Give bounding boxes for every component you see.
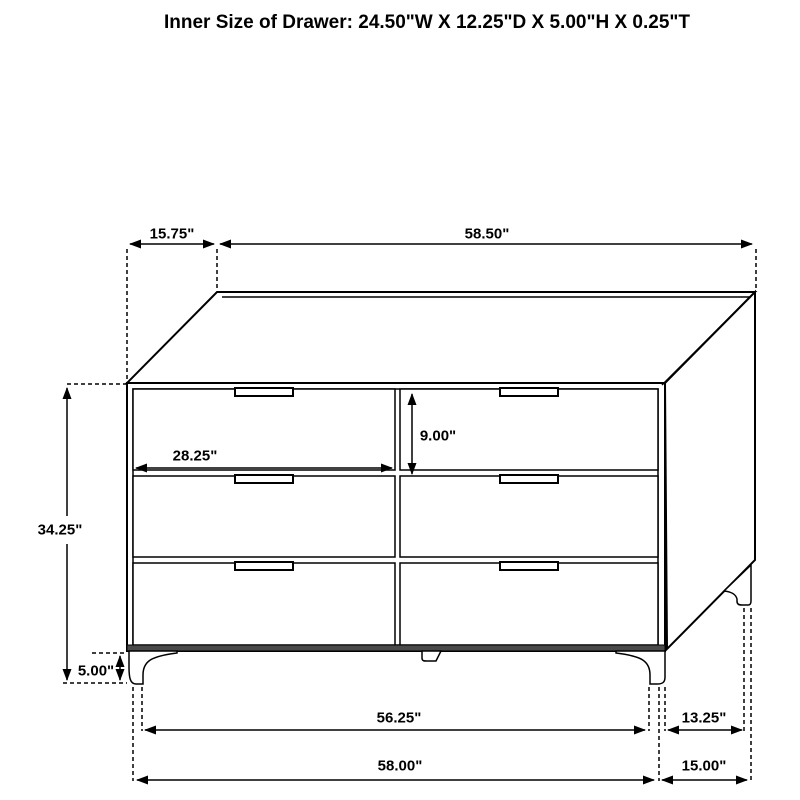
drawer-handle-icon (500, 475, 558, 483)
drawer-front (133, 476, 395, 557)
drawer-front (400, 476, 658, 557)
dresser-top-face (127, 292, 755, 383)
front-left-leg (129, 651, 177, 684)
drawer-handle-icon (235, 388, 293, 396)
dim-label-top-width: 58.50" (465, 226, 510, 243)
dim-label-overall-height: 34.25" (38, 522, 83, 539)
drawer-handle-icon (500, 562, 558, 570)
drawer-front (133, 563, 395, 645)
dim-label-drawer-width: 28.25" (173, 448, 218, 465)
front-right-leg (616, 651, 665, 684)
dim-label-bottom-outer-width: 58.00" (378, 758, 423, 775)
dim-label-top-depth: 15.75" (150, 226, 195, 243)
diagram-title: Inner Size of Drawer: 24.50"W X 12.25"D … (164, 12, 690, 34)
drawer-handle-icon (500, 388, 558, 396)
base-rail (127, 645, 665, 651)
center-support (422, 651, 441, 661)
dim-label-side-inner-depth: 13.25" (682, 710, 727, 727)
dim-label-leg-height: 5.00" (78, 663, 114, 680)
dresser-line-drawing (0, 0, 800, 800)
dim-label-side-outer-depth: 15.00" (682, 758, 727, 775)
drawer-handle-icon (235, 475, 293, 483)
dimension-diagram: Inner Size of Drawer: 24.50"W X 12.25"D … (0, 0, 800, 800)
dim-label-drawer-height: 9.00" (420, 428, 456, 445)
drawer-front (400, 563, 658, 645)
drawer-fronts (133, 389, 658, 645)
dim-label-bottom-inner-width: 56.25" (377, 710, 422, 727)
drawer-handle-icon (235, 562, 293, 570)
